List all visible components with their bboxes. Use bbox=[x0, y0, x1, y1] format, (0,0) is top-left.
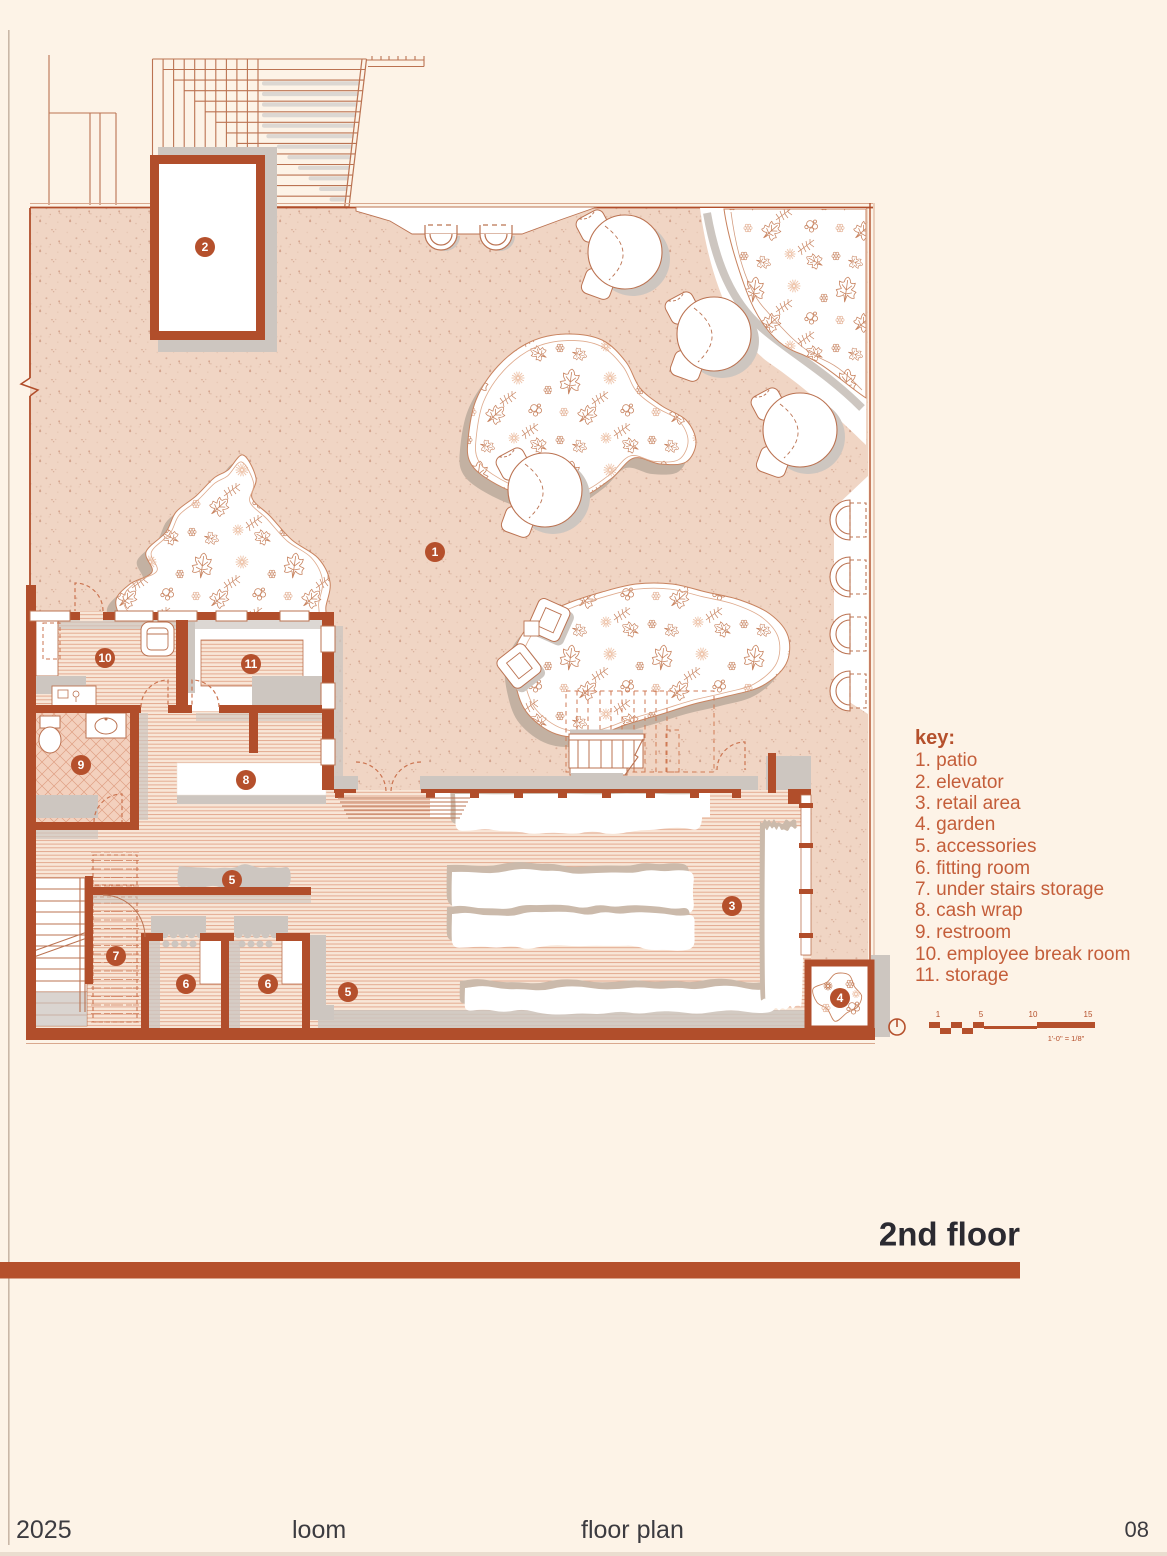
svg-text:3. retail area: 3. retail area bbox=[915, 793, 1021, 814]
svg-text:08: 08 bbox=[1125, 1517, 1149, 1542]
svg-text:7: 7 bbox=[113, 949, 120, 963]
svg-text:6: 6 bbox=[265, 977, 272, 991]
svg-text:1'-0" = 1/8": 1'-0" = 1/8" bbox=[1048, 1034, 1085, 1043]
svg-text:8: 8 bbox=[243, 773, 250, 787]
svg-text:2nd floor: 2nd floor bbox=[879, 1216, 1020, 1253]
svg-text:4: 4 bbox=[837, 991, 844, 1005]
svg-text:floor plan: floor plan bbox=[581, 1516, 684, 1544]
svg-text:10. employee break room: 10. employee break room bbox=[915, 944, 1130, 965]
svg-text:key:: key: bbox=[915, 727, 955, 749]
svg-text:loom: loom bbox=[292, 1516, 346, 1544]
svg-text:6: 6 bbox=[183, 977, 190, 991]
svg-text:11. storage: 11. storage bbox=[915, 965, 1009, 986]
svg-text:5: 5 bbox=[345, 985, 352, 999]
svg-text:5: 5 bbox=[979, 1010, 984, 1019]
svg-text:2. elevator: 2. elevator bbox=[915, 772, 1004, 793]
svg-text:5. accessories: 5. accessories bbox=[915, 836, 1036, 857]
svg-text:2025: 2025 bbox=[16, 1516, 72, 1544]
svg-text:1: 1 bbox=[432, 545, 439, 559]
svg-text:1: 1 bbox=[936, 1010, 941, 1019]
svg-text:3: 3 bbox=[729, 899, 736, 913]
svg-text:9: 9 bbox=[78, 758, 85, 772]
svg-text:1. patio: 1. patio bbox=[915, 750, 977, 771]
svg-text:15: 15 bbox=[1084, 1010, 1093, 1019]
svg-text:9. restroom: 9. restroom bbox=[915, 922, 1011, 943]
svg-text:11: 11 bbox=[245, 657, 258, 671]
svg-text:10: 10 bbox=[1029, 1010, 1038, 1019]
svg-text:7. under stairs storage: 7. under stairs storage bbox=[915, 879, 1104, 900]
svg-text:4. garden: 4. garden bbox=[915, 814, 995, 835]
svg-text:6. fitting room: 6. fitting room bbox=[915, 858, 1030, 879]
svg-text:2: 2 bbox=[202, 240, 209, 254]
svg-text:8. cash wrap: 8. cash wrap bbox=[915, 900, 1023, 921]
svg-text:10: 10 bbox=[98, 651, 112, 665]
svg-text:5: 5 bbox=[229, 873, 236, 887]
